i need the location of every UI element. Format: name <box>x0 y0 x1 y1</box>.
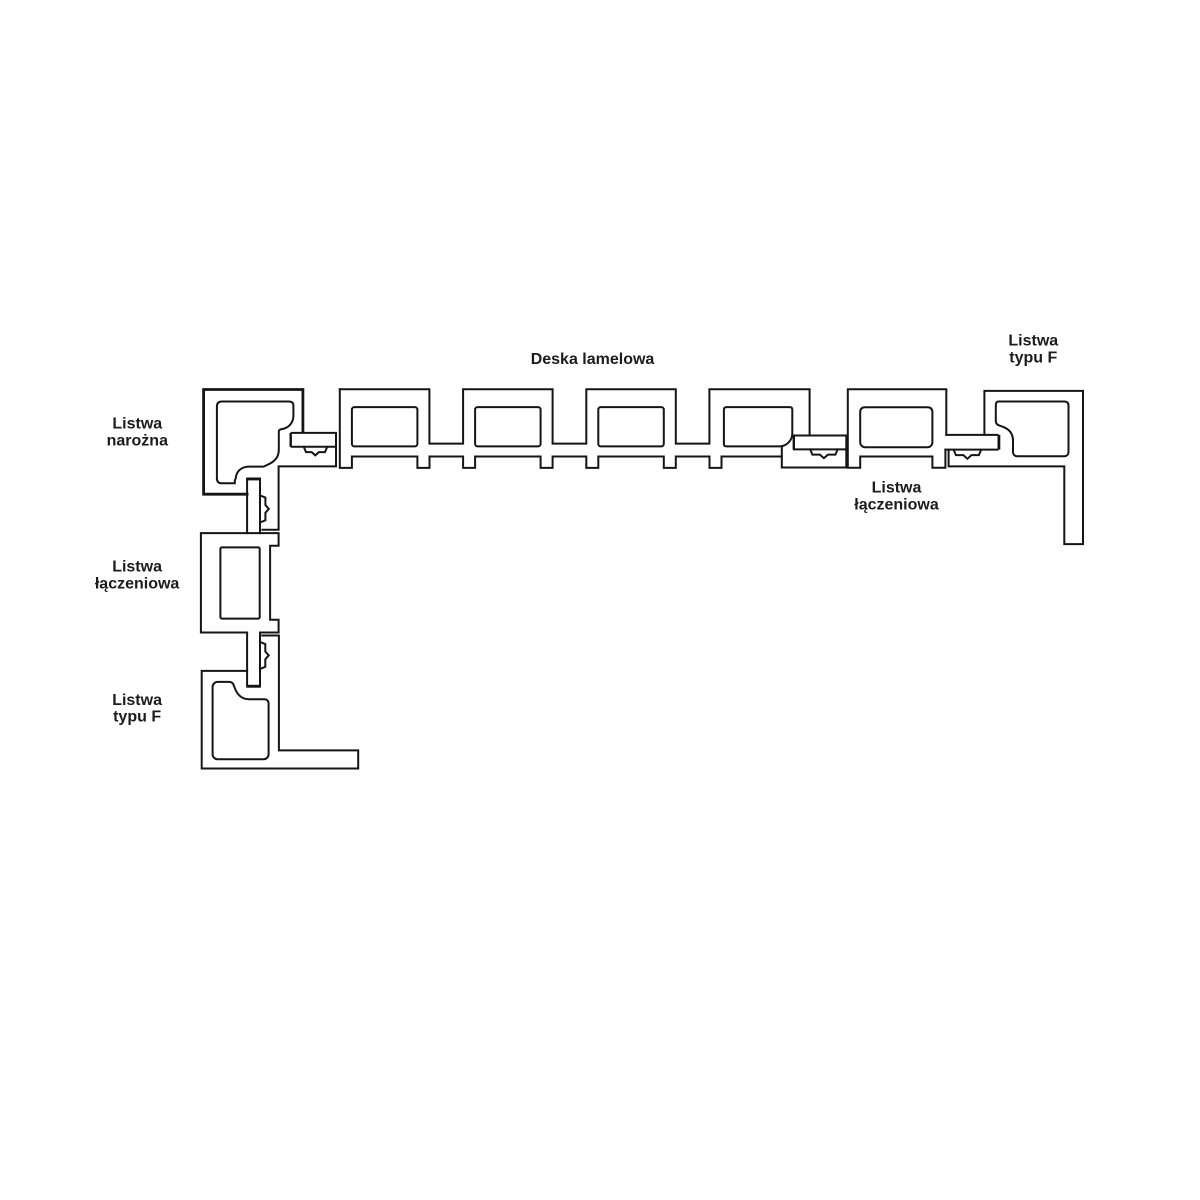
svg-text:typu F: typu F <box>113 709 161 726</box>
svg-text:Listwa: Listwa <box>112 559 162 576</box>
svg-text:typu F: typu F <box>1009 349 1057 366</box>
svg-text:Listwa: Listwa <box>112 416 162 433</box>
svg-text:Listwa: Listwa <box>872 480 922 497</box>
svg-text:łączeniowa: łączeniowa <box>95 575 180 592</box>
svg-text:narożna: narożna <box>107 433 168 450</box>
svg-text:łączeniowa: łączeniowa <box>854 496 939 513</box>
svg-text:Deska lamelowa: Deska lamelowa <box>531 351 655 368</box>
svg-text:Listwa: Listwa <box>112 692 162 709</box>
svg-text:Listwa: Listwa <box>1008 333 1058 350</box>
